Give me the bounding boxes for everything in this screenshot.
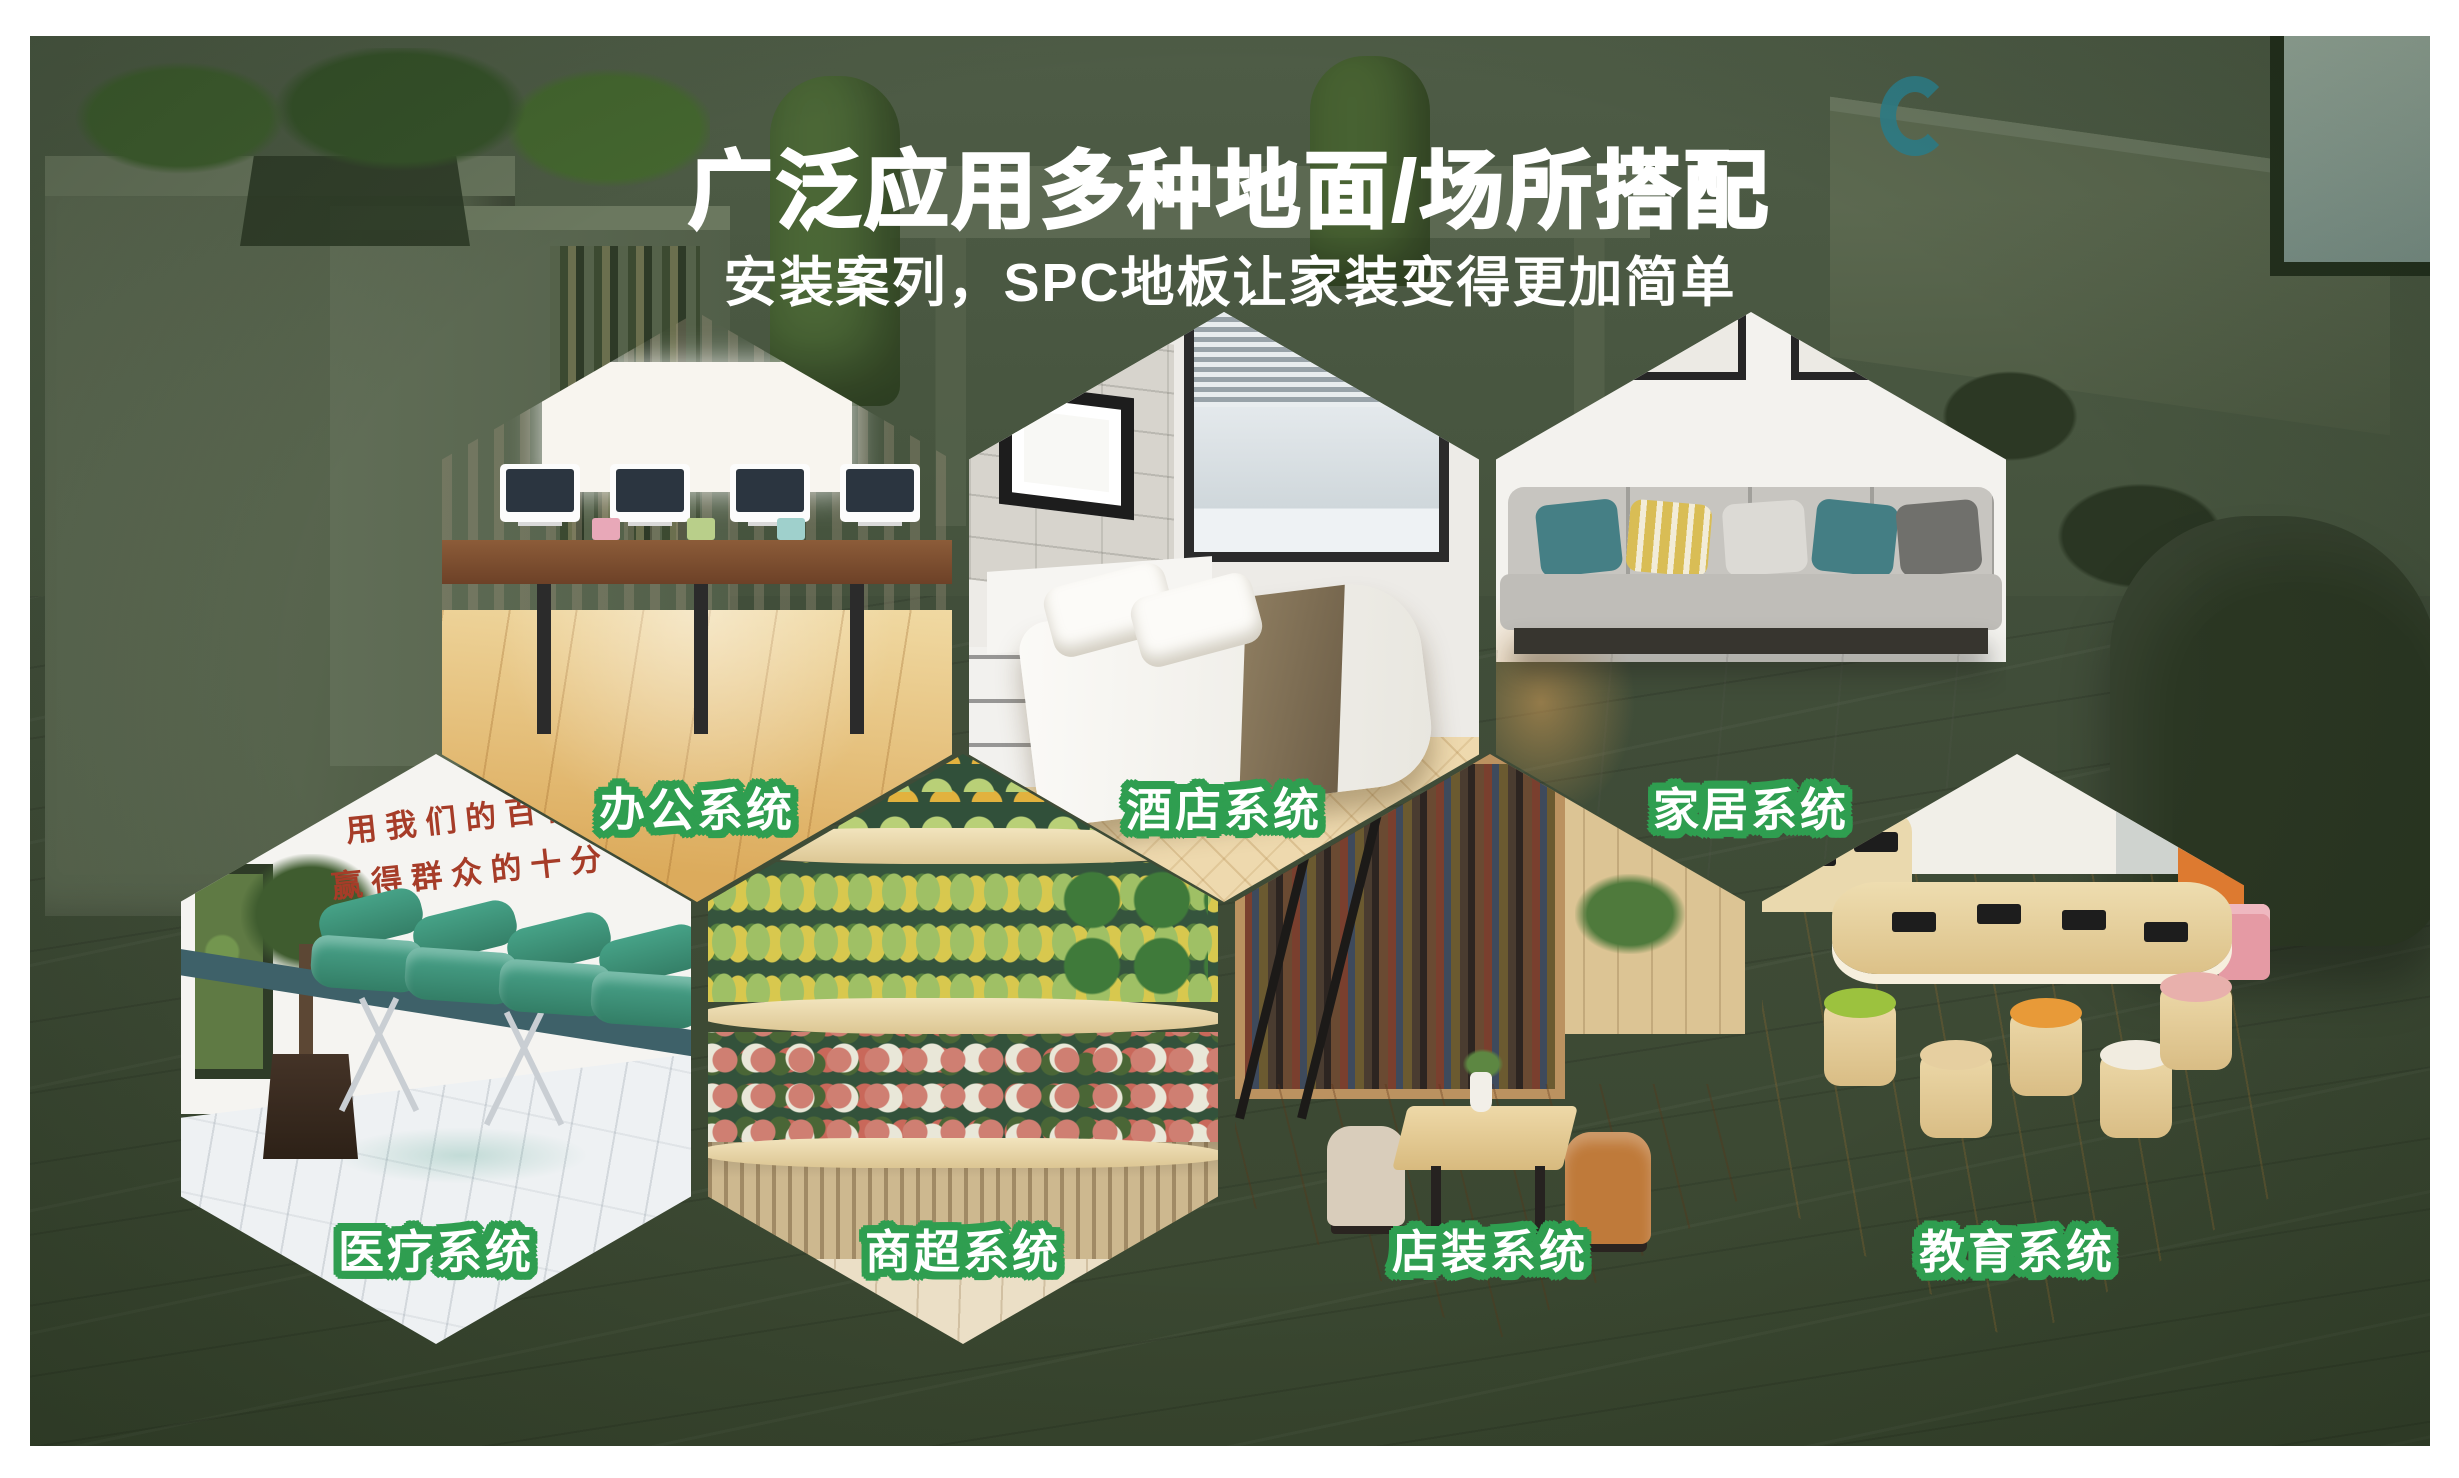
promo-banner: 广泛应用多种地面/场所搭配 安装案列，SPC地板让家装变得更加简单 办公系统 [0, 0, 2459, 1478]
sofa-pillow [1534, 498, 1623, 578]
stool [2160, 986, 2232, 1070]
wavy-shelf-edge [708, 1138, 1218, 1168]
stool [2010, 1012, 2082, 1096]
sofa-seat [1500, 574, 2002, 630]
sofa-base [1514, 628, 1988, 654]
desk-box [777, 518, 805, 540]
stool [1920, 1054, 1992, 1138]
stool [2100, 1054, 2172, 1138]
sofa-pillow [1625, 499, 1713, 578]
desk-leg [850, 584, 864, 734]
beige-chair [1327, 1126, 1405, 1226]
monitor-icon [730, 464, 810, 522]
bench-seat [589, 970, 691, 1030]
tablet [1977, 904, 2021, 924]
sofa-pillow [1722, 499, 1809, 577]
tablet [1892, 912, 1936, 932]
monitor-icon [500, 464, 580, 522]
photo-stage: 广泛应用多种地面/场所搭配 安装案列，SPC地板让家装变得更加简单 办公系统 [30, 36, 2430, 1446]
desk-leg [537, 584, 551, 734]
desk-box [592, 518, 620, 540]
sofa-pillow [1810, 498, 1899, 578]
tablet [2062, 910, 2106, 930]
watermelons [1058, 866, 1208, 996]
stool [1824, 1002, 1896, 1086]
monitor-icon [610, 464, 690, 522]
page-title: 广泛应用多种地面/场所搭配 [30, 124, 2430, 245]
shop-plant [1575, 874, 1685, 954]
wavy-shelf-edge [708, 998, 1218, 1034]
tablet [2144, 922, 2188, 942]
desk-leg [694, 584, 708, 734]
vase [1470, 1072, 1492, 1112]
bathroom-view [1194, 407, 1439, 552]
cafe-table [1392, 1106, 1578, 1170]
desk-box [687, 518, 715, 540]
produce-shelf-bottom-tier [708, 1032, 1218, 1142]
page-subtitle: 安装案列，SPC地板让家装变得更加简单 [30, 238, 2430, 317]
office-desk [442, 540, 952, 584]
sofa-pillow [1895, 499, 1983, 578]
monitor-icon [840, 464, 920, 522]
